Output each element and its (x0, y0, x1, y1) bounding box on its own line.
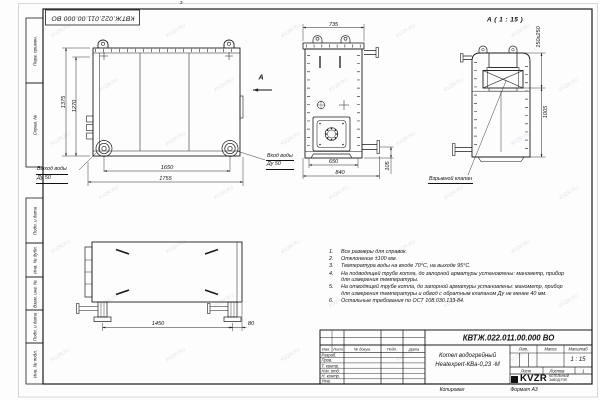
col-podp: Подп. (387, 346, 397, 351)
sheet-zone-mark: 3 (180, 0, 183, 5)
frame-field-inv-podl: Инв. № подл. (32, 350, 37, 378)
copied-label: Копировал (440, 387, 465, 393)
logo-icon (511, 376, 518, 383)
col-izm: Изм. (322, 346, 330, 351)
top-view-drawing (77, 242, 247, 331)
explosion-valve-text: Взрывной клапан (428, 176, 473, 185)
logo-text: KVZR (520, 374, 547, 384)
dim-side-inner: 650 (329, 159, 338, 165)
technical-notes: 1.Все размеры для справок. 2.Отклонение … (329, 249, 569, 305)
detail-view-drawing (453, 46, 546, 175)
col-list: Лист (333, 346, 343, 351)
frame-field-podp-data-lower: Подп. и дата (32, 312, 37, 340)
note-item: 3.Температура воды на входе 70°С, на вых… (329, 263, 569, 270)
note-number: 2. (329, 256, 338, 263)
explosion-valve-label: Взрывной клапан (428, 176, 473, 185)
frame-field-podp-data-upper: Подп. и дата (32, 206, 37, 234)
row-nachotd: Нач. отд. (322, 368, 340, 373)
row-razrab: Разраб. (322, 353, 337, 358)
dim-top-back: 80 (248, 321, 254, 327)
col-docum: № докум. (354, 346, 371, 351)
frame-field-inv-dubl: Инв. № дубл. (32, 246, 37, 274)
frame-field-sprav-no: Справ. № (32, 115, 37, 135)
product-name-line2: Heatexpert-КВа-0,23 -М (435, 362, 500, 368)
row-utv: Утв. (322, 379, 331, 384)
format-label: Формат А3 (510, 387, 537, 393)
drawing-sheet: KVZR.RUKVZR.RUKVZR.RUKVZR.RUKVZR.RUKVZR.… (0, 0, 600, 400)
note-item: 4.На подводящей трубе котла, до запорной… (329, 271, 569, 284)
listov-value: 1 (582, 368, 584, 373)
logo-caption: КОТЕЛЬНЫЙ ЗАВОД РЭП (549, 375, 569, 382)
note-number: 4. (329, 271, 338, 284)
dim-front-height-inner: 1270 (72, 100, 78, 112)
massa-label: Масса (544, 347, 556, 352)
note-text: На подводящей трубе котла, до запорной а… (341, 271, 569, 284)
dim-side-outer: 840 (335, 170, 344, 176)
side-view-drawing (303, 24, 394, 179)
water-inlet-line2: Ду 50 (266, 161, 294, 170)
note-text: На отводящей трубе котла, до запорной ар… (341, 284, 569, 297)
scale-value: 1 : 15 (570, 357, 585, 363)
lit-label: Лит. (519, 347, 529, 352)
listov-label: Листов (550, 368, 565, 373)
logo-caption-line2: ЗАВОД РЭП (549, 379, 569, 383)
note-text: Отклонение ±100 мм. (341, 256, 569, 263)
note-number: 6. (329, 298, 338, 305)
section-arrow-label: А (258, 75, 263, 82)
row-prov: Пров. (322, 358, 333, 363)
dim-top-length: 1450 (152, 321, 164, 327)
row-tkontr: Т. контр. (322, 363, 340, 368)
water-outlet-line1: Выход воды (36, 166, 68, 175)
title-block-doc-number: КВТЖ.022.011.00.000 ВО (463, 333, 555, 342)
water-outlet-line2: Ду 50 (36, 175, 68, 184)
manufacturer-logo: KVZR КОТЕЛЬНЫЙ ЗАВОД РЭП (511, 374, 591, 384)
note-number: 1. (329, 249, 338, 256)
note-item: 2.Отклонение ±100 мм. (329, 256, 569, 263)
dim-side-top: 735 (329, 22, 338, 28)
masshtab-label: Масштаб (568, 347, 587, 352)
dim-front-height-outer: 1375 (61, 96, 67, 108)
frame-field-vzam-inv: Взам. инв. № (32, 280, 37, 308)
note-text: Все размеры для справок. (341, 249, 569, 256)
note-text: Температура воды на входе 70°С, на выход… (341, 263, 569, 270)
front-view-drawing (62, 40, 272, 186)
dim-detail-valve: 150х250 (536, 26, 542, 47)
note-item: 1.Все размеры для справок. (329, 249, 569, 256)
col-data: Дата (409, 346, 419, 351)
note-item: 6.Остальные требования по ОСТ 108.030.13… (329, 298, 569, 305)
detail-view-title: А ( 1 : 15 ) (487, 17, 523, 24)
water-inlet-label: Вход воды Ду 50 (266, 153, 294, 171)
note-number: 5. (329, 284, 338, 297)
dim-detail-height: 1005 (543, 106, 549, 118)
note-text: Остальные требования по ОСТ 108.030.133-… (341, 298, 569, 305)
note-number: 3. (329, 263, 338, 270)
dim-side-pipe: 105 (385, 161, 391, 170)
product-name-line1: Котел водогрейный (439, 353, 496, 359)
note-item: 5.На отводящей трубе котла, до запорной … (329, 284, 569, 297)
dim-front-width-outer: 1755 (159, 176, 171, 182)
frame-field-perv-primen: Перв. примен. (32, 36, 37, 66)
dim-front-width-inner: 1650 (161, 165, 173, 171)
water-inlet-line1: Вход воды (266, 153, 294, 162)
rotated-doc-number: КВТЖ.022.011.00.000 ВО (51, 14, 134, 21)
water-outlet-label: Выход воды Ду 50 (36, 166, 68, 184)
